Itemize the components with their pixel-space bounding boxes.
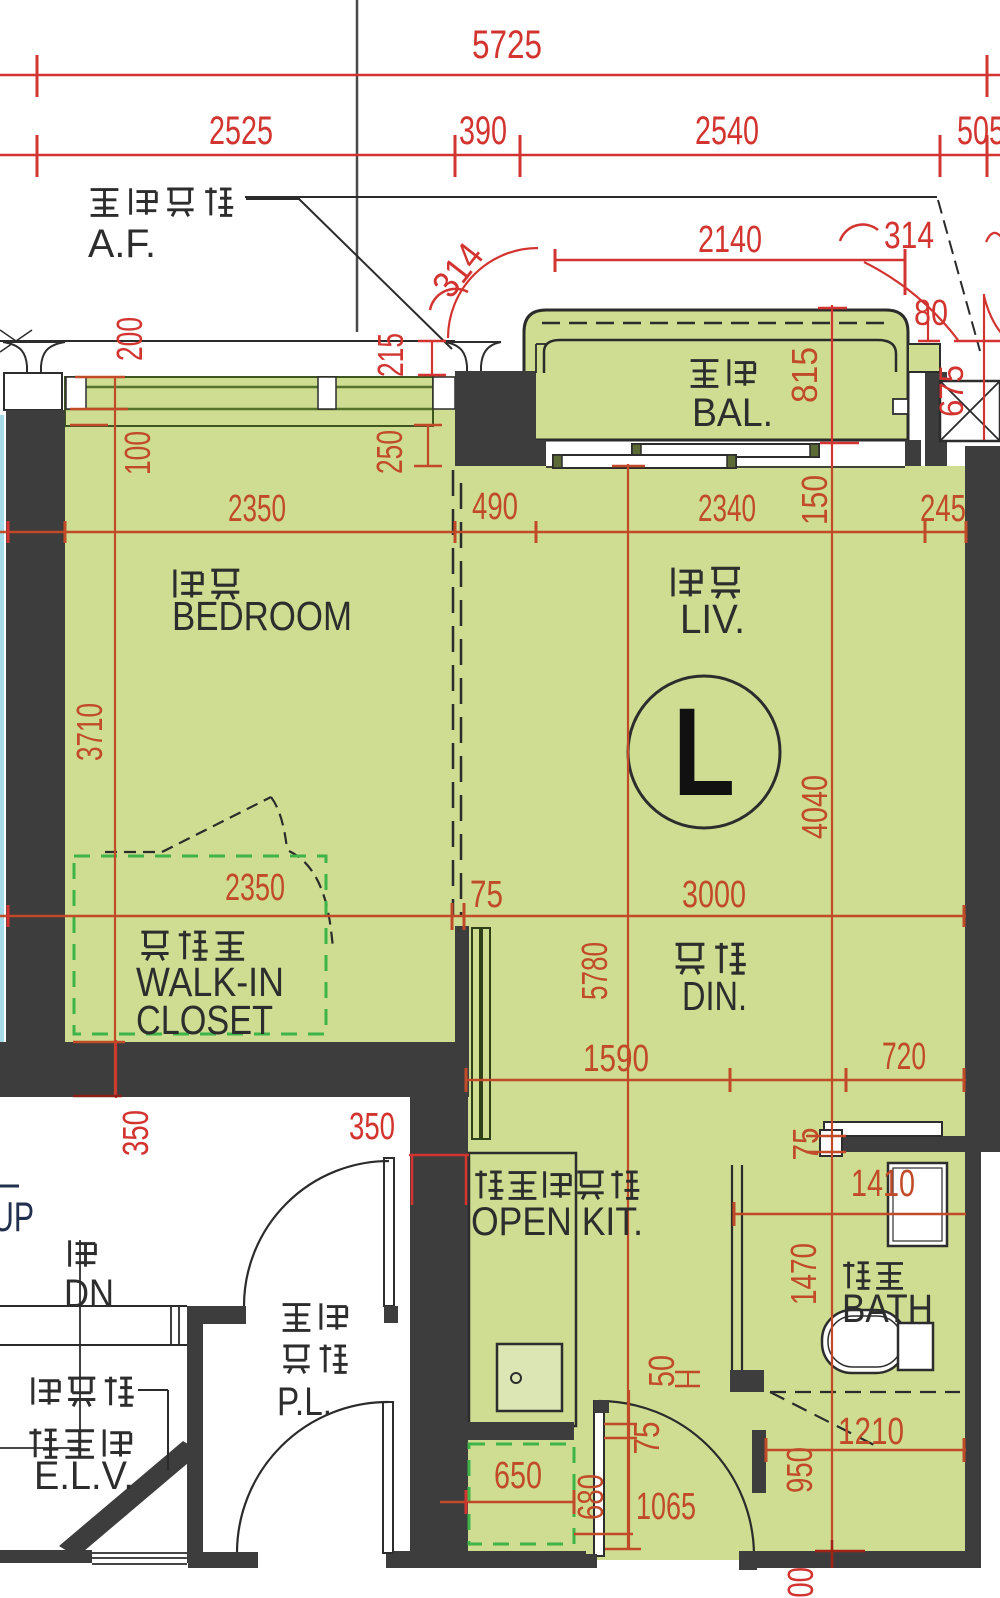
svg-text:680: 680	[570, 1474, 611, 1520]
svg-text:1590: 1590	[583, 1038, 649, 1080]
svg-text:2340: 2340	[698, 488, 756, 530]
svg-text:75: 75	[470, 874, 503, 916]
svg-text:CLOSET: CLOSET	[136, 997, 273, 1043]
svg-text:DN: DN	[64, 1272, 114, 1316]
svg-text:950: 950	[779, 1447, 820, 1493]
svg-text:L: L	[673, 683, 735, 822]
svg-text:UP: UP	[0, 1193, 34, 1240]
svg-text:50: 50	[641, 1355, 682, 1387]
svg-text:100: 100	[117, 431, 158, 475]
svg-text:1210: 1210	[838, 1411, 904, 1453]
svg-text:5725: 5725	[472, 23, 542, 67]
svg-text:LIV.: LIV.	[680, 596, 745, 642]
svg-text:1470: 1470	[783, 1243, 824, 1305]
svg-text:675: 675	[933, 365, 971, 417]
svg-text:A.F.: A.F.	[88, 222, 156, 266]
svg-text:BEDROOM: BEDROOM	[172, 593, 352, 639]
svg-text:75: 75	[626, 1422, 667, 1455]
svg-text:5780: 5780	[574, 942, 615, 1000]
svg-text:600: 600	[780, 1567, 821, 1598]
svg-text:DIN.: DIN.	[682, 973, 747, 1019]
svg-text:1410: 1410	[851, 1163, 915, 1205]
svg-text:250: 250	[369, 430, 410, 474]
svg-text:200: 200	[109, 317, 150, 361]
svg-text:2350: 2350	[225, 867, 285, 909]
svg-text:390: 390	[459, 109, 507, 153]
svg-text:2140: 2140	[698, 219, 762, 261]
svg-text:OPEN KIT.: OPEN KIT.	[471, 1200, 643, 1244]
svg-text:215: 215	[370, 333, 411, 377]
svg-text:815: 815	[784, 347, 825, 403]
svg-text:P.L.: P.L.	[277, 1380, 332, 1424]
svg-text:BATH: BATH	[842, 1287, 933, 1331]
svg-text:3710: 3710	[69, 703, 110, 761]
svg-text:490: 490	[472, 486, 518, 528]
svg-text:2540: 2540	[695, 109, 759, 153]
svg-text:3000: 3000	[682, 874, 746, 916]
svg-text:75: 75	[785, 1128, 826, 1161]
svg-text:2350: 2350	[228, 488, 286, 530]
svg-text:720: 720	[882, 1036, 926, 1078]
svg-text:505: 505	[957, 109, 1000, 153]
svg-text:2525: 2525	[209, 109, 273, 153]
svg-text:350: 350	[115, 1110, 156, 1156]
svg-text:E.L.V.: E.L.V.	[34, 1454, 134, 1498]
svg-text:4040: 4040	[794, 775, 835, 839]
svg-text:350: 350	[349, 1106, 395, 1148]
svg-text:1065: 1065	[636, 1486, 696, 1528]
svg-text:80: 80	[914, 292, 948, 333]
svg-text:245: 245	[920, 488, 966, 530]
svg-text:650: 650	[494, 1455, 542, 1497]
svg-text:150: 150	[794, 475, 835, 525]
svg-text:BAL.: BAL.	[692, 391, 773, 435]
svg-text:314: 314	[884, 215, 934, 257]
